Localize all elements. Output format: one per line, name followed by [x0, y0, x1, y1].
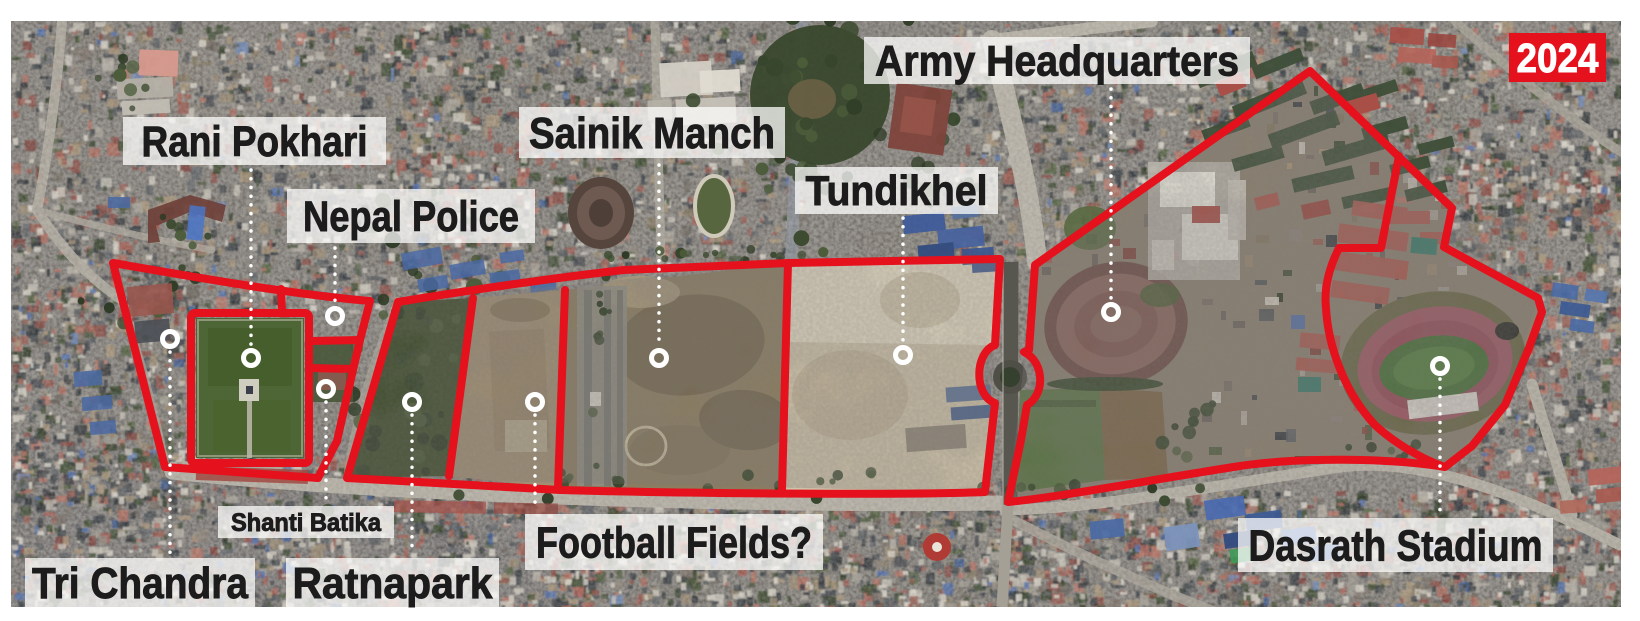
svg-text:Football Fields?: Football Fields?: [536, 518, 812, 567]
svg-text:Rani Pokhari: Rani Pokhari: [142, 118, 368, 166]
svg-text:Army Headquarters: Army Headquarters: [875, 38, 1239, 86]
svg-text:Dasrath Stadium: Dasrath Stadium: [1249, 521, 1543, 570]
svg-text:Nepal Police: Nepal Police: [303, 193, 519, 241]
svg-text:Shanti Batika: Shanti Batika: [231, 509, 382, 537]
svg-text:Tri Chandra: Tri Chandra: [32, 559, 248, 608]
svg-text:2024: 2024: [1517, 35, 1599, 81]
svg-text:Sainik Manch: Sainik Manch: [529, 109, 775, 158]
svg-text:Ratnapark: Ratnapark: [293, 559, 493, 608]
svg-text:Tundikhel: Tundikhel: [806, 167, 988, 214]
